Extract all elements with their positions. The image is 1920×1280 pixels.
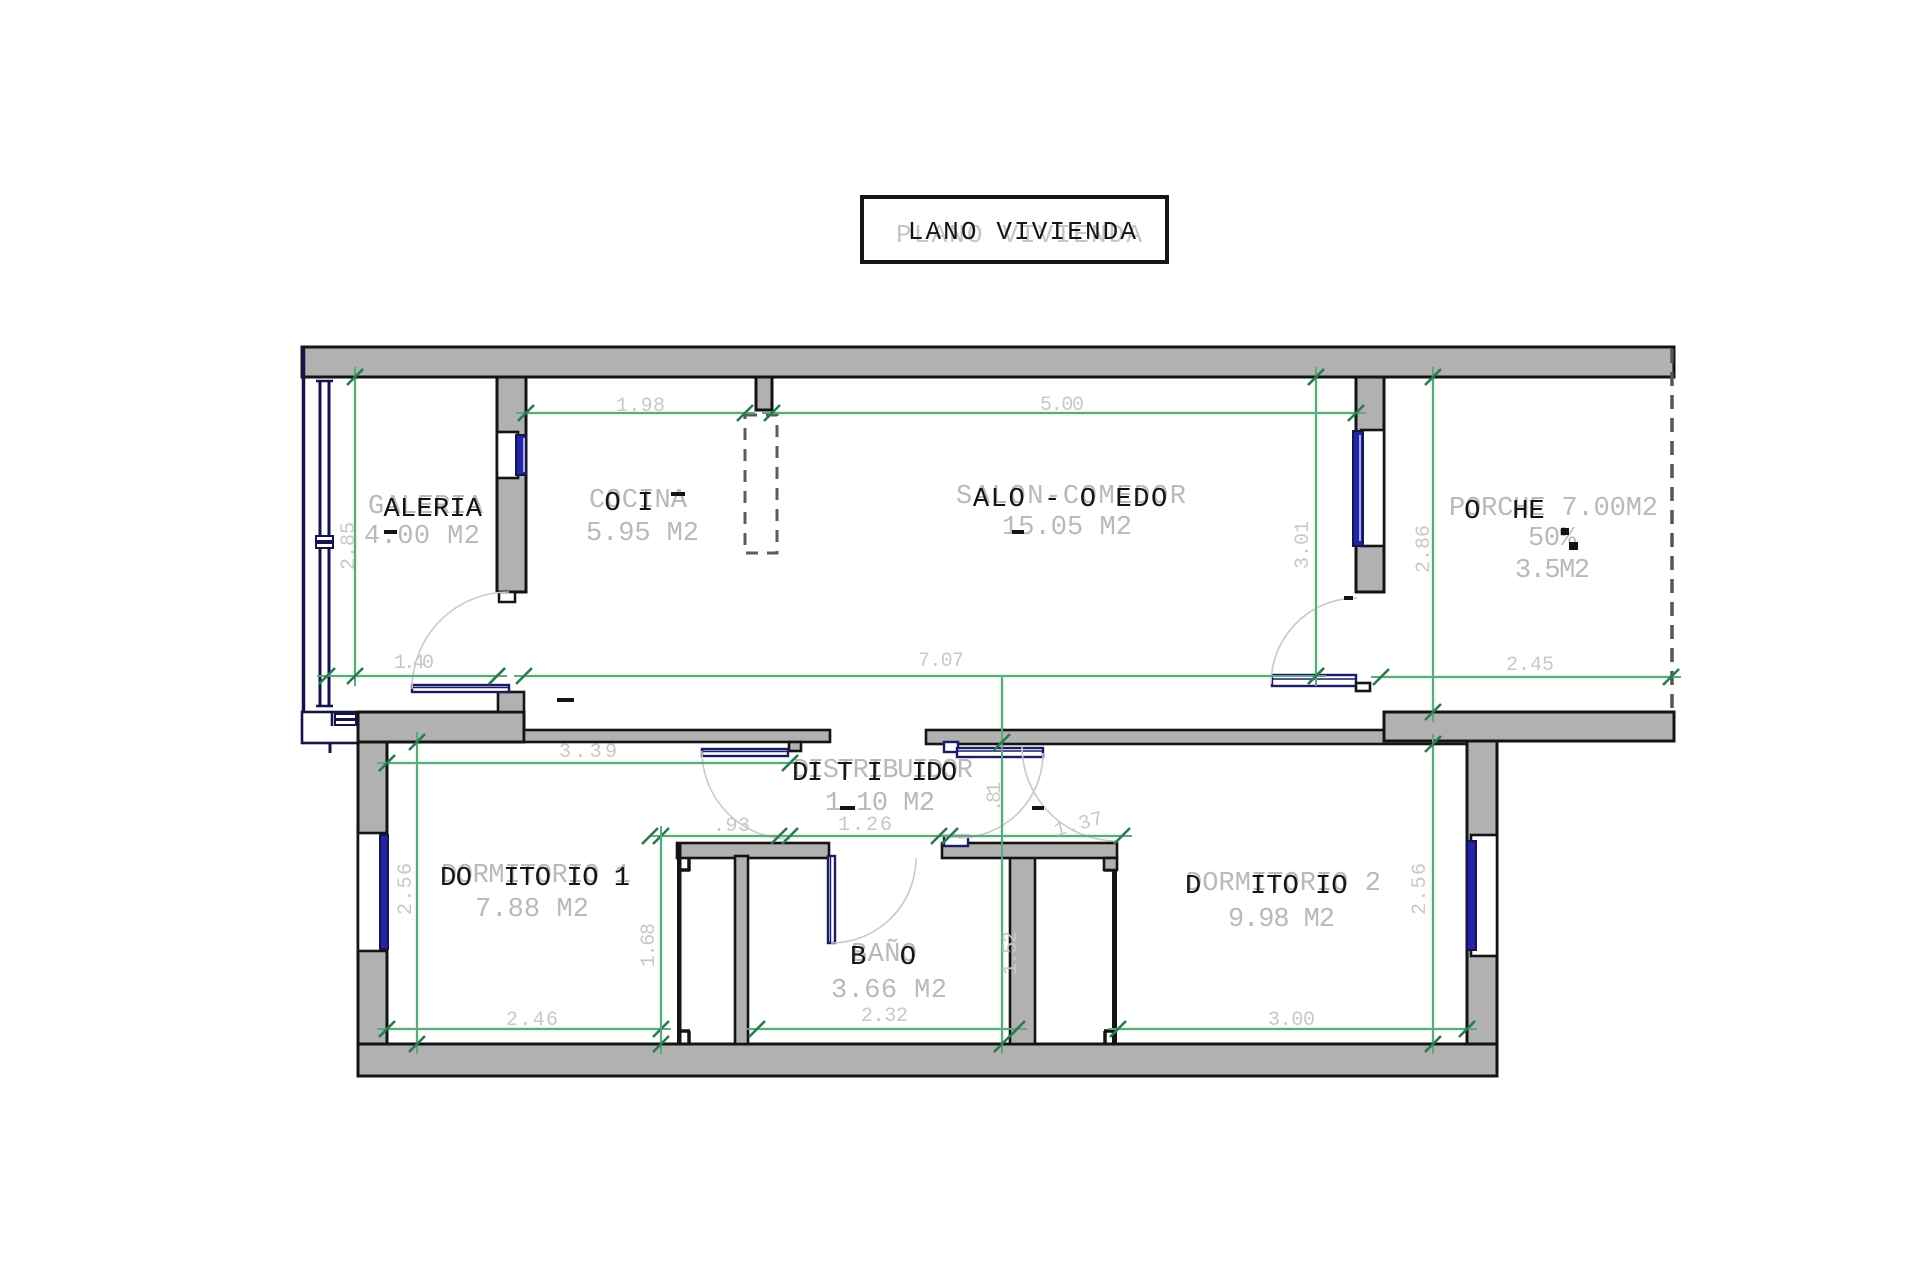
svg-text:.93: .93 xyxy=(713,815,750,838)
svg-text:3.66 M2: 3.66 M2 xyxy=(831,976,947,1006)
svg-text:DI T I IDO: DI T I IDO xyxy=(792,759,972,789)
svg-text:1.40: 1.40 xyxy=(394,652,434,675)
svg-text:2.85: 2.85 xyxy=(338,522,361,570)
svg-text:2.86: 2.86 xyxy=(1413,525,1436,573)
svg-text:2.46: 2.46 xyxy=(506,1009,558,1032)
svg-text:O HE: O HE xyxy=(1448,497,1657,527)
svg-text:1.98: 1.98 xyxy=(616,395,665,418)
svg-text:15.05 M2: 15.05 M2 xyxy=(1002,513,1132,543)
svg-text:.81: .81 xyxy=(984,782,1007,812)
svg-text:7.88 M2: 7.88 M2 xyxy=(475,895,589,925)
svg-text:2.45: 2.45 xyxy=(1506,654,1554,677)
svg-text:DO ITO IO 1: DO ITO IO 1 xyxy=(440,864,630,894)
svg-text:2.32: 2.32 xyxy=(861,1005,908,1028)
svg-text:9.98 M2: 9.98 M2 xyxy=(1228,905,1335,935)
svg-text:5.00: 5.00 xyxy=(1040,394,1084,417)
svg-text:3.01: 3.01 xyxy=(1292,521,1315,569)
svg-text:1.52: 1.52 xyxy=(1000,931,1023,975)
svg-text:LANO VIVIENDA: LANO VIVIENDA xyxy=(890,217,1136,247)
svg-text:3.5M2: 3.5M2 xyxy=(1515,556,1590,586)
svg-text:7.07: 7.07 xyxy=(918,650,964,673)
svg-text:2.56: 2.56 xyxy=(395,863,418,915)
svg-text:1.10 M2: 1.10 M2 xyxy=(825,789,935,819)
svg-text:3.00: 3.00 xyxy=(1268,1009,1315,1032)
svg-text:4.00 M2: 4.00 M2 xyxy=(364,522,480,552)
svg-text:ALERIA: ALERIA xyxy=(367,495,483,525)
svg-text:2.56: 2.56 xyxy=(1409,863,1432,915)
svg-text:D ITO IO: D ITO IO xyxy=(1185,872,1380,902)
svg-text:5.95 M2: 5.95 M2 xyxy=(586,519,699,549)
svg-text:1.68: 1.68 xyxy=(638,923,661,967)
svg-text:B O: B O xyxy=(850,943,916,973)
